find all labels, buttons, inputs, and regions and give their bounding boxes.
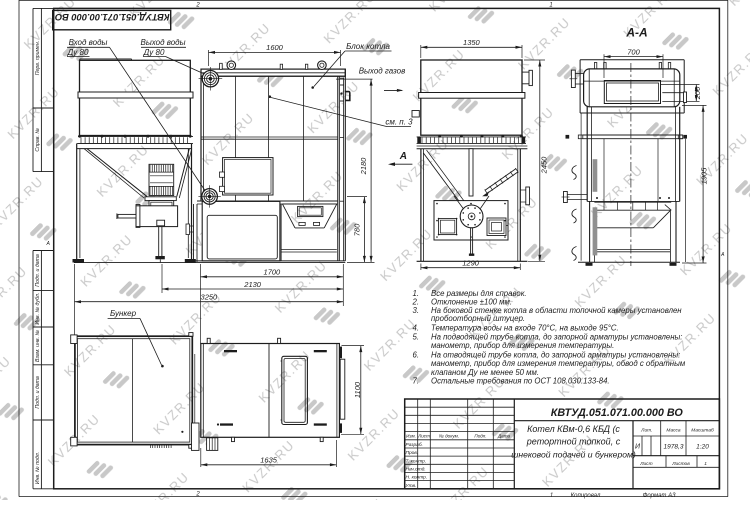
svg-text:Лит.: Лит. — [640, 427, 652, 433]
svg-text:KVZR.RU: KVZR.RU — [0, 263, 30, 321]
svg-text:Дата: Дата — [497, 434, 511, 439]
svg-text:см. п. 3: см. п. 3 — [385, 117, 413, 126]
svg-text:KVZR.RU: KVZR.RU — [321, 0, 379, 46]
svg-text:7.: 7. — [412, 376, 419, 385]
svg-text:Бункер: Бункер — [110, 309, 137, 318]
svg-text:шнековой подачей и бункером): шнековой подачей и бункером) — [511, 449, 636, 459]
svg-text:6.: 6. — [412, 350, 419, 359]
svg-text:2: 2 — [195, 2, 200, 8]
svg-text:KVZR.RU: KVZR.RU — [572, 252, 630, 310]
svg-text:KVZR.RU: KVZR.RU — [515, 14, 573, 72]
svg-text:KVZR.RU: KVZR.RU — [77, 231, 135, 289]
svg-text:KVZR.RU: KVZR.RU — [499, 104, 557, 162]
svg-text:KVZR.RU: KVZR.RU — [150, 379, 208, 437]
svg-text:1: 1 — [549, 2, 552, 8]
svg-text:Инв. № подл.: Инв. № подл. — [35, 452, 41, 484]
svg-text:Ду 80: Ду 80 — [67, 48, 89, 57]
svg-text:Взам. инв. №: Взам. инв. № — [35, 329, 41, 361]
svg-text:5.: 5. — [412, 333, 419, 342]
svg-text:200: 200 — [693, 86, 702, 100]
svg-text:1700: 1700 — [264, 268, 282, 277]
svg-text:манометр, прибор для измерения: манометр, прибор для измерения температу… — [431, 341, 614, 350]
svg-text:KVZR.RU: KVZR.RU — [94, 141, 152, 199]
svg-text:1600: 1600 — [266, 43, 284, 52]
svg-text:Лист: Лист — [639, 461, 652, 467]
svg-text:Пров.: Пров. — [406, 450, 419, 456]
svg-text:3.: 3. — [412, 306, 419, 315]
svg-text:Масштаб: Масштаб — [691, 427, 714, 433]
svg-text:Утв.: Утв. — [406, 483, 417, 489]
svg-text:манометр, прибор для измерения: манометр, прибор для измерения температу… — [431, 359, 686, 368]
svg-text:Подп. и дата: Подп. и дата — [35, 376, 41, 409]
svg-text:Инв. № дубл.: Инв. № дубл. — [35, 293, 41, 325]
svg-text:780: 780 — [352, 223, 361, 236]
svg-text:KVZR.RU: KVZR.RU — [434, 463, 492, 500]
svg-text:Ду 80: Ду 80 — [143, 48, 165, 57]
svg-text:KVZR.RU: KVZR.RU — [328, 495, 386, 500]
svg-text:2180: 2180 — [359, 157, 368, 176]
svg-text:А: А — [399, 151, 407, 162]
svg-text:KVZR.RU: KVZR.RU — [61, 321, 119, 379]
svg-text:KVZR.RU: KVZR.RU — [272, 257, 330, 315]
svg-text:Котел КВм-0,6 КБД (с: Котел КВм-0,6 КБД (с — [527, 424, 620, 434]
svg-text:КВТУД.051.071.00.000 ВО: КВТУД.051.071.00.000 ВО — [551, 407, 684, 419]
svg-text:KVZR.RU: KVZR.RU — [0, 173, 47, 231]
svg-text:Изм.: Изм. — [406, 434, 416, 439]
svg-text:3250: 3250 — [201, 293, 219, 302]
svg-text:KVZR.RU: KVZR.RU — [726, 0, 750, 9]
svg-text:700: 700 — [627, 47, 640, 56]
svg-text:На отводящей трубе котла, до з: На отводящей трубе котла, до запорной ар… — [431, 350, 680, 359]
svg-text:Нач.отд.: Нач.отд. — [406, 467, 426, 473]
svg-text:1905: 1905 — [700, 167, 709, 185]
svg-text:Перв. примен.: Перв. примен. — [35, 41, 41, 75]
svg-text:И: И — [635, 444, 641, 451]
svg-text:1: 1 — [704, 461, 707, 467]
svg-text:Вход воды: Вход воды — [69, 38, 108, 47]
svg-text:1290: 1290 — [462, 259, 480, 268]
svg-text:А-А: А-А — [625, 26, 647, 40]
svg-text:KVZR.RU: KVZR.RU — [239, 437, 297, 495]
svg-text:Справ. №: Справ. № — [35, 128, 41, 152]
svg-text:KVZR.RU: KVZR.RU — [393, 136, 451, 194]
svg-text:Т. контр.: Т. контр. — [406, 458, 427, 464]
svg-text:2450: 2450 — [540, 156, 549, 175]
svg-text:Подп.: Подп. — [474, 434, 486, 439]
svg-text:пробоотборный штуцер.: пробоотборный штуцер. — [431, 314, 525, 323]
svg-text:Остальные требования по ОСТ 10: Остальные требования по ОСТ 108.030.133-… — [431, 376, 610, 385]
svg-text:Разраб.: Разраб. — [406, 442, 423, 448]
svg-text:1635: 1635 — [260, 456, 278, 465]
svg-text:KVZR.RU: KVZR.RU — [0, 353, 14, 411]
svg-text:1100: 1100 — [353, 381, 362, 398]
svg-text:А: А — [720, 252, 725, 258]
svg-text:KVZR.RU: KVZR.RU — [709, 40, 750, 98]
svg-text:№ докум.: № докум. — [439, 434, 459, 439]
svg-text:Выход газов: Выход газов — [359, 66, 406, 75]
svg-text:1:20: 1:20 — [696, 444, 709, 451]
svg-text:KVZR.RU: KVZR.RU — [361, 315, 419, 373]
svg-text:4.: 4. — [412, 323, 419, 332]
svg-text:Н. контр.: Н. контр. — [406, 475, 428, 481]
svg-text:Выход воды: Выход воды — [141, 38, 186, 47]
svg-text:Подп. и дата: Подп. и дата — [35, 254, 41, 287]
svg-text:Масса: Масса — [666, 427, 681, 433]
svg-text:1350: 1350 — [463, 38, 481, 47]
svg-text:А: А — [46, 241, 51, 247]
svg-text:2: 2 — [195, 491, 200, 497]
svg-text:1: 1 — [550, 493, 553, 499]
svg-text:ретортной топкой, с: ретортной топкой, с — [526, 436, 621, 446]
svg-text:1978,3: 1978,3 — [664, 444, 684, 451]
svg-text:Формат А3: Формат А3 — [643, 493, 676, 499]
svg-text:KVZR.RU: KVZR.RU — [377, 226, 435, 284]
svg-text:Температура воды на входе 70°С: Температура воды на входе 70°С, на выход… — [431, 323, 619, 332]
svg-text:Листов: Листов — [671, 461, 690, 467]
svg-text:КВТУД.051.071.00.000 ВО: КВТУД.051.071.00.000 ВО — [54, 12, 169, 23]
svg-text:KVZR.RU: KVZR.RU — [134, 469, 192, 500]
svg-text:Блок котла: Блок котла — [346, 42, 390, 51]
svg-text:Лист: Лист — [417, 434, 430, 439]
svg-text:Копировал: Копировал — [571, 493, 601, 499]
svg-text:2130: 2130 — [243, 280, 262, 289]
